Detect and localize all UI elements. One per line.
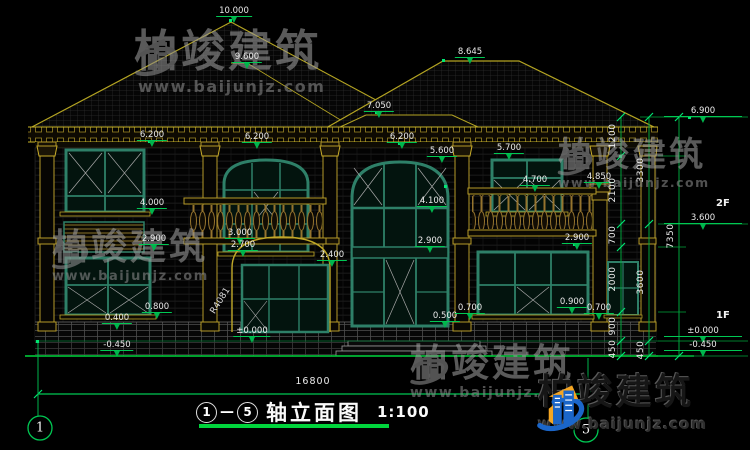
floor-tag: 2F — [716, 198, 730, 209]
roofs — [30, 22, 656, 128]
title-text: 轴立面图 — [266, 397, 362, 427]
overall-dimension: 16800 — [295, 376, 330, 387]
cad-canvas: 柏竣建筑 www.baijunjz.com 柏竣建筑 www.baijunjz.… — [0, 0, 750, 450]
vertical-dim-value: 2000 — [608, 267, 618, 292]
vertical-dim-value: 1200 — [608, 124, 618, 149]
vertical-dim-value: 3600 — [636, 270, 646, 295]
vertical-dim-value: 7350 — [666, 224, 676, 249]
title-axis-end-bubble: 5 — [237, 402, 258, 423]
brand-logo-block: 柏竣建筑 www.baijunjz.com — [534, 375, 707, 433]
title-axis-start-bubble: 1 — [196, 402, 217, 423]
drawing-title: 1 — 5 轴立面图 1:100 — [196, 397, 430, 427]
title-dash: — — [220, 404, 234, 420]
porch-steps — [336, 341, 492, 356]
vertical-dim-value: 900 — [608, 317, 618, 336]
window-1f-left — [60, 258, 156, 319]
floor-tag: 1F — [716, 310, 730, 321]
title-scale: 1:100 — [377, 403, 430, 421]
balcony-right — [468, 188, 596, 236]
vertical-dim-value: 450 — [608, 340, 618, 359]
window-2f-left — [60, 150, 150, 252]
window-stair-tall — [352, 162, 448, 326]
vertical-dim-value: 2100 — [608, 178, 618, 203]
cornice — [28, 127, 658, 148]
vertical-dim-value: 3300 — [636, 158, 646, 183]
title-underline — [199, 424, 389, 428]
vertical-dim-value: 450 — [636, 341, 646, 360]
axis-bubble-number: 1 — [36, 421, 44, 436]
vertical-dim-value: 700 — [608, 226, 618, 245]
window-1f-right — [472, 252, 594, 319]
